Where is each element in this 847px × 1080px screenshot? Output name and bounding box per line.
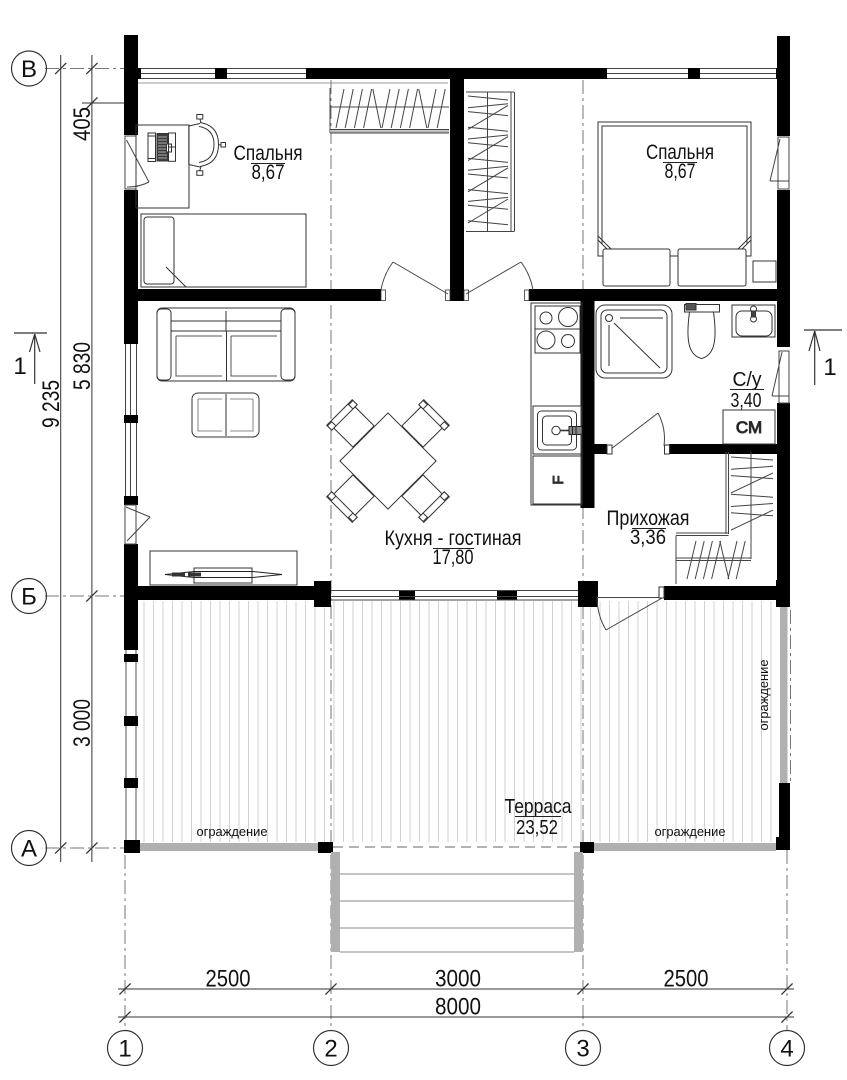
svg-text:А: А <box>21 836 37 863</box>
svg-text:ограждение: ограждение <box>756 660 771 731</box>
svg-text:5 830: 5 830 <box>69 342 96 390</box>
svg-text:2500: 2500 <box>664 966 709 993</box>
svg-text:ограждение: ограждение <box>655 824 726 839</box>
svg-text:В: В <box>21 56 37 83</box>
svg-text:3 000: 3 000 <box>69 699 96 747</box>
svg-text:Терраса: Терраса <box>505 796 573 818</box>
svg-text:17,80: 17,80 <box>433 546 474 569</box>
svg-text:4: 4 <box>780 1036 793 1063</box>
svg-text:Б: Б <box>21 584 37 611</box>
svg-text:8000: 8000 <box>435 994 481 1021</box>
svg-text:8,67: 8,67 <box>252 161 285 184</box>
svg-text:1: 1 <box>13 353 26 380</box>
svg-text:3000: 3000 <box>435 966 481 993</box>
svg-text:2: 2 <box>324 1036 337 1063</box>
svg-text:С/у: С/у <box>733 369 762 391</box>
svg-text:ограждение: ограждение <box>197 824 268 839</box>
svg-text:2500: 2500 <box>206 966 251 993</box>
svg-text:8,67: 8,67 <box>665 160 696 183</box>
svg-text:405: 405 <box>69 107 96 141</box>
svg-text:1: 1 <box>118 1036 131 1063</box>
svg-text:3: 3 <box>576 1036 589 1063</box>
svg-text:СМ: СМ <box>736 418 762 437</box>
svg-text:3,40: 3,40 <box>731 390 762 412</box>
svg-text:1: 1 <box>823 354 836 381</box>
svg-text:23,52: 23,52 <box>516 817 558 839</box>
svg-text:F: F <box>550 475 567 484</box>
svg-text:9 235: 9 235 <box>38 380 65 428</box>
svg-text:3,36: 3,36 <box>630 526 666 549</box>
